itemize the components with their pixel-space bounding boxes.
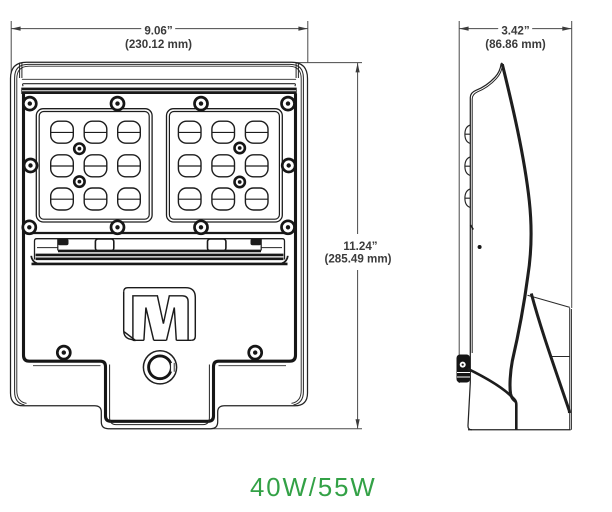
svg-text:(230.12 mm): (230.12 mm) [125,38,192,51]
svg-text:9.06”: 9.06” [144,24,172,37]
svg-text:(285.49 mm): (285.49 mm) [324,253,391,266]
svg-text:40W/55W: 40W/55W [250,474,377,502]
svg-text:3.42”: 3.42” [501,24,529,37]
svg-text:11.24”: 11.24” [343,240,377,253]
svg-text:(86.86 mm): (86.86 mm) [485,38,546,51]
